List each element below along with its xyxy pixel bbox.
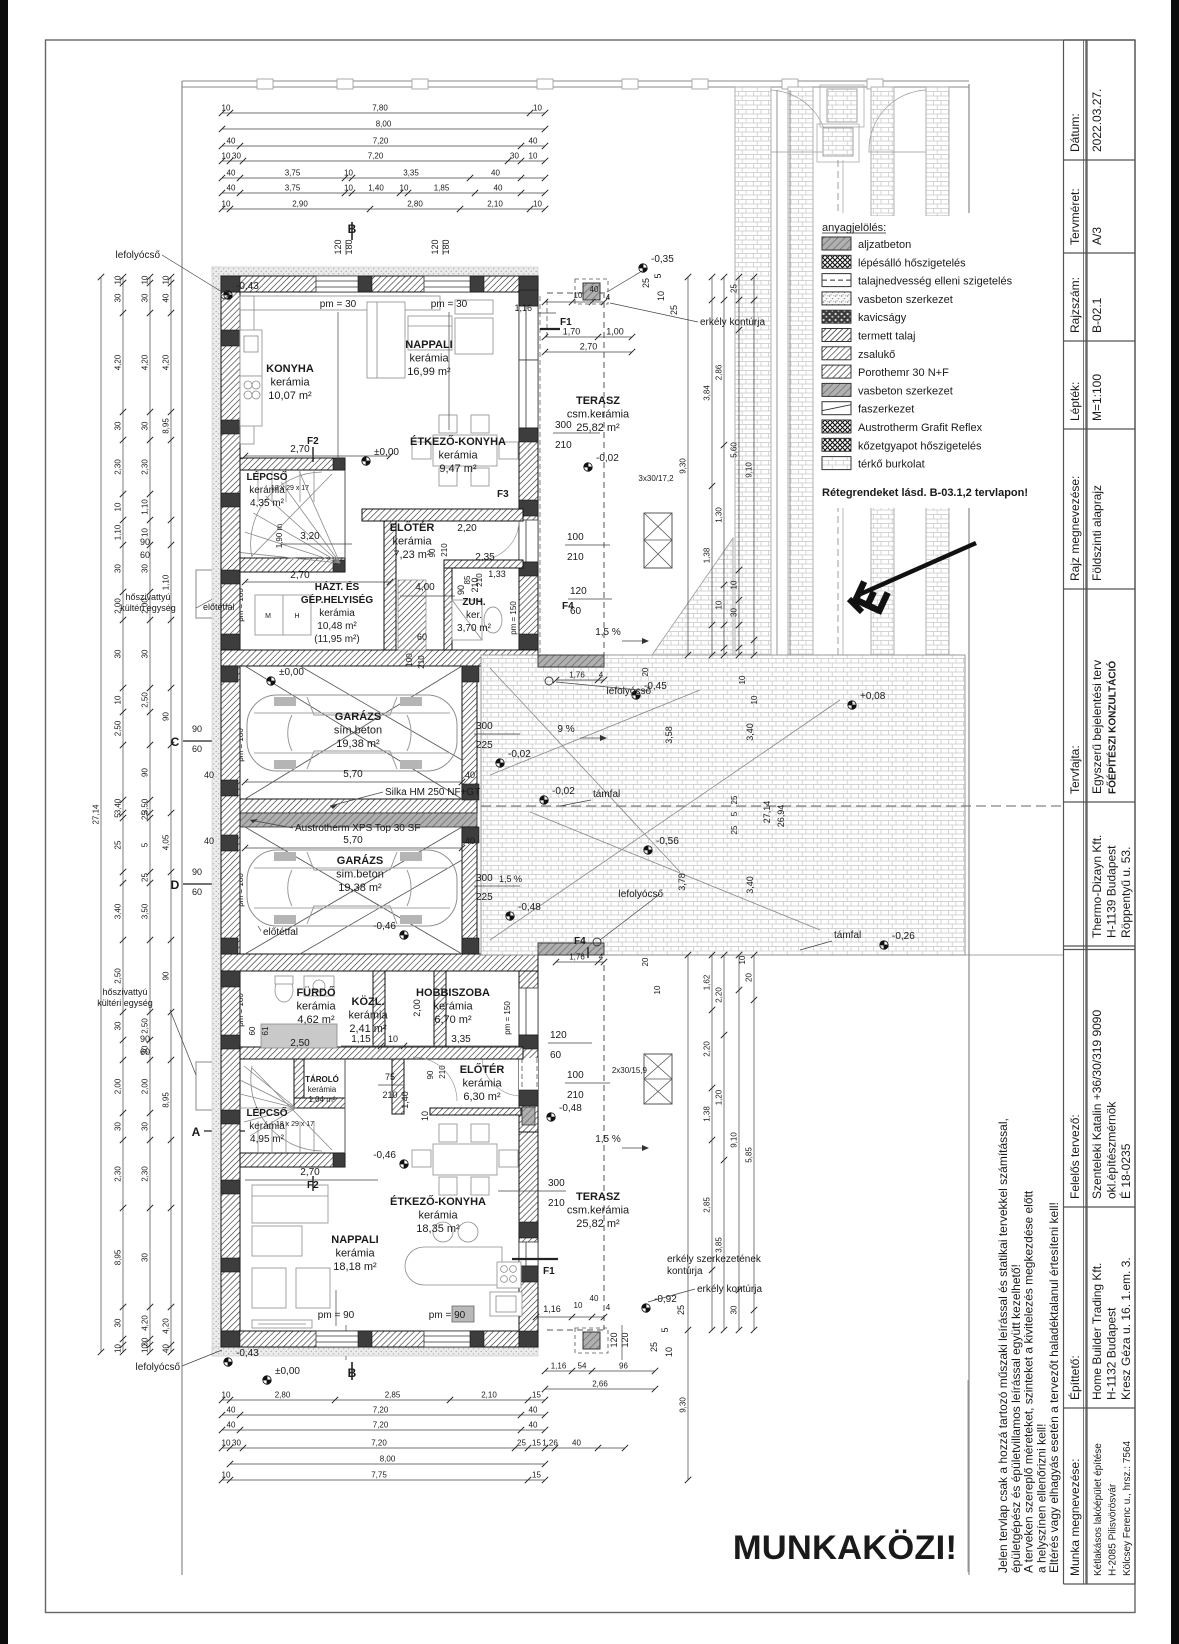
svg-text:1,10: 1,10 xyxy=(141,499,150,515)
svg-text:2,70: 2,70 xyxy=(290,444,310,455)
svg-text:M=1:100: M=1:100 xyxy=(1090,374,1104,421)
svg-text:2,50: 2,50 xyxy=(114,720,123,736)
svg-text:talajnedvesség elleni szigetel: talajnedvesség elleni szigetelés xyxy=(858,276,1013,288)
svg-text:Építtető:: Építtető: xyxy=(1067,1355,1082,1400)
svg-text:Munka megnevezése:: Munka megnevezése: xyxy=(1068,1459,1082,1576)
svg-text:25: 25 xyxy=(730,825,739,834)
svg-text:10: 10 xyxy=(141,275,150,284)
svg-text:30: 30 xyxy=(114,564,123,573)
svg-text:90: 90 xyxy=(141,768,150,777)
svg-text:2,50: 2,50 xyxy=(290,1038,310,1049)
svg-text:1,5 %: 1,5 % xyxy=(595,1134,621,1145)
svg-text:3,85: 3,85 xyxy=(715,1237,724,1253)
svg-text:10: 10 xyxy=(114,502,123,511)
svg-text:27,14: 27,14 xyxy=(92,804,101,825)
svg-text:kerámia: kerámia xyxy=(296,1001,336,1013)
svg-text:8,00: 8,00 xyxy=(376,120,392,129)
svg-text:-0,43: -0,43 xyxy=(236,281,259,292)
svg-text:40: 40 xyxy=(572,1439,581,1448)
svg-text:10: 10 xyxy=(114,695,123,704)
svg-text:2,90: 2,90 xyxy=(292,200,308,209)
svg-text:1,70: 1,70 xyxy=(563,327,581,337)
svg-text:8,00: 8,00 xyxy=(380,1455,396,1464)
svg-text:40: 40 xyxy=(162,293,171,302)
svg-text:10: 10 xyxy=(222,152,231,161)
svg-text:7,80: 7,80 xyxy=(372,104,388,113)
svg-text:9,47 m²: 9,47 m² xyxy=(439,463,477,475)
svg-text:7,20: 7,20 xyxy=(373,1421,389,1430)
svg-text:Silka HM 250 NF+GT: Silka HM 250 NF+GT xyxy=(385,787,480,798)
svg-text:5,60: 5,60 xyxy=(730,442,739,458)
svg-text:25: 25 xyxy=(730,284,739,293)
svg-text:4,20: 4,20 xyxy=(114,354,123,370)
svg-text:1,16: 1,16 xyxy=(551,1362,567,1371)
svg-text:2022.03.27.: 2022.03.27. xyxy=(1090,89,1104,152)
svg-text:10: 10 xyxy=(533,200,542,209)
svg-text:2,00: 2,00 xyxy=(141,1078,150,1094)
svg-text:90: 90 xyxy=(140,1034,150,1044)
svg-text:2,85: 2,85 xyxy=(385,1391,401,1400)
svg-text:2,80: 2,80 xyxy=(407,200,423,209)
svg-text:30: 30 xyxy=(141,293,150,302)
svg-text:100: 100 xyxy=(405,653,414,667)
svg-text:40: 40 xyxy=(227,1421,236,1430)
svg-text:2,50: 2,50 xyxy=(141,692,150,708)
svg-text:FŐÉPÍTÉSZI KONZULTÁCIÓ: FŐÉPÍTÉSZI KONZULTÁCIÓ xyxy=(1106,661,1119,794)
svg-text:10: 10 xyxy=(222,104,231,113)
svg-text:vasbeton szerkezet: vasbeton szerkezet xyxy=(858,385,953,397)
svg-text:ZUH.: ZUH. xyxy=(462,597,486,608)
svg-text:kerámia: kerámia xyxy=(335,1248,375,1260)
svg-text:Kölcsey Ferenc u., hrsz.: 7564: Kölcsey Ferenc u., hrsz.: 7564 xyxy=(1122,1440,1133,1576)
svg-text:1,38: 1,38 xyxy=(703,1106,712,1122)
svg-text:1,5 %: 1,5 % xyxy=(595,627,621,638)
svg-text:1,00: 1,00 xyxy=(606,327,624,337)
svg-text:1,10: 1,10 xyxy=(162,574,171,590)
svg-text:lefolyócső: lefolyócső xyxy=(619,889,664,900)
svg-text:Rétegrendeket lásd. B-03.1,2 t: Rétegrendeket lásd. B-03.1,2 tervlapon! xyxy=(822,487,1028,499)
svg-text:1,38: 1,38 xyxy=(703,547,712,563)
svg-text:4,20: 4,20 xyxy=(141,1315,150,1331)
svg-text:6,70 m²: 6,70 m² xyxy=(434,1014,472,1026)
svg-text:támfal: támfal xyxy=(593,789,620,800)
svg-text:20: 20 xyxy=(641,667,650,676)
svg-text:9 %: 9 % xyxy=(557,724,574,735)
svg-text:30: 30 xyxy=(114,421,123,430)
svg-text:90: 90 xyxy=(140,537,150,547)
svg-text:TÁROLÓ: TÁROLÓ xyxy=(305,1075,339,1084)
svg-text:15: 15 xyxy=(532,1439,541,1448)
svg-text:A: A xyxy=(192,1125,201,1139)
svg-text:Kétlakásos lakóépület építése: Kétlakásos lakóépület építése xyxy=(1093,1443,1104,1576)
svg-text:-0,46: -0,46 xyxy=(373,921,396,932)
svg-text:5: 5 xyxy=(114,813,123,818)
svg-text:2,20: 2,20 xyxy=(703,1041,712,1057)
svg-text:25: 25 xyxy=(730,795,739,804)
svg-text:40: 40 xyxy=(465,836,475,846)
svg-text:3,35: 3,35 xyxy=(451,1034,471,1045)
svg-text:GARÁZS: GARÁZS xyxy=(337,854,383,867)
svg-text:2,50: 2,50 xyxy=(114,968,123,984)
svg-text:1,20: 1,20 xyxy=(715,1089,724,1105)
svg-text:2,10: 2,10 xyxy=(481,1391,497,1400)
svg-text:60: 60 xyxy=(248,1026,257,1035)
svg-text:10: 10 xyxy=(222,200,231,209)
svg-text:5,85: 5,85 xyxy=(745,1147,754,1163)
svg-text:5: 5 xyxy=(730,811,739,816)
svg-text:2,80: 2,80 xyxy=(275,1391,291,1400)
svg-text:90: 90 xyxy=(428,548,437,557)
svg-text:10: 10 xyxy=(388,1034,398,1044)
svg-text:75: 75 xyxy=(385,1072,395,1082)
svg-text:5,70: 5,70 xyxy=(343,769,363,780)
svg-text:4: 4 xyxy=(606,1303,611,1312)
svg-text:210: 210 xyxy=(475,573,484,587)
svg-text:4: 4 xyxy=(606,293,611,302)
svg-text:10: 10 xyxy=(533,104,542,113)
svg-text:225: 225 xyxy=(476,892,493,903)
svg-text:10: 10 xyxy=(141,528,150,537)
svg-text:8,95: 8,95 xyxy=(162,418,171,434)
svg-text:10: 10 xyxy=(738,675,747,684)
svg-text:LÉPCSŐ: LÉPCSŐ xyxy=(246,470,287,483)
svg-text:-0,02: -0,02 xyxy=(508,749,531,760)
svg-text:Tervméret:: Tervméret: xyxy=(1068,188,1082,245)
svg-text:19,38 m²: 19,38 m² xyxy=(336,738,380,750)
svg-text:vasbeton szerkezet: vasbeton szerkezet xyxy=(858,294,953,306)
svg-text:2,30: 2,30 xyxy=(114,1166,123,1182)
svg-text:pm = 30: pm = 30 xyxy=(431,299,468,310)
svg-text:C: C xyxy=(171,735,180,749)
svg-text:4: 4 xyxy=(599,953,604,962)
svg-text:30: 30 xyxy=(232,1439,241,1448)
svg-text:40: 40 xyxy=(227,184,236,193)
svg-text:210: 210 xyxy=(567,1090,584,1101)
svg-text:lépésálló hőszigetelés: lépésálló hőszigetelés xyxy=(858,257,966,269)
svg-text:3,58: 3,58 xyxy=(664,726,674,744)
svg-text:kerámia: kerámia xyxy=(433,1001,473,1013)
svg-text:NAPPALI: NAPPALI xyxy=(405,339,452,351)
svg-text:4,62 m²: 4,62 m² xyxy=(297,1014,335,1026)
svg-text:Lépték:: Lépték: xyxy=(1068,382,1082,421)
svg-text:10: 10 xyxy=(664,1347,674,1357)
svg-text:2,30: 2,30 xyxy=(141,459,150,475)
svg-text:LÉPCSŐ: LÉPCSŐ xyxy=(246,1106,287,1119)
svg-text:erkély kontúrja: erkély kontúrja xyxy=(700,317,765,328)
svg-text:30: 30 xyxy=(114,649,123,658)
svg-text:90: 90 xyxy=(192,867,202,877)
svg-text:TERASZ: TERASZ xyxy=(576,1191,620,1203)
svg-text:120: 120 xyxy=(570,586,587,597)
svg-text:térkő burkolat: térkő burkolat xyxy=(858,459,925,471)
svg-text:GARÁZS: GARÁZS xyxy=(335,710,381,723)
svg-text:1,30: 1,30 xyxy=(715,507,724,523)
svg-text:pm = 150: pm = 150 xyxy=(503,1001,512,1035)
svg-text:F1: F1 xyxy=(543,1266,555,1277)
svg-text:ELŐTÉR: ELŐTÉR xyxy=(390,521,435,534)
svg-text:±0,00: ±0,00 xyxy=(279,667,304,678)
svg-text:60: 60 xyxy=(140,1047,150,1057)
svg-text:csm.kerámia: csm.kerámia xyxy=(567,409,630,421)
svg-text:2,20: 2,20 xyxy=(715,987,724,1003)
svg-text:15: 15 xyxy=(532,1391,541,1400)
svg-text:sím.beton: sím.beton xyxy=(334,725,382,737)
svg-text:1,76: 1,76 xyxy=(569,671,585,680)
svg-text:Rajz megnevezése:: Rajz megnevezése: xyxy=(1068,476,1082,581)
svg-text:90: 90 xyxy=(426,1070,435,1079)
svg-text:Kresz Géza u. 16. 1.em. 3.: Kresz Géza u. 16. 1.em. 3. xyxy=(1119,1257,1133,1400)
svg-text:18,35 m²: 18,35 m² xyxy=(416,1223,460,1235)
svg-text:előtétfal: előtétfal xyxy=(263,927,298,938)
svg-text:120: 120 xyxy=(430,239,440,254)
svg-text:30: 30 xyxy=(730,608,739,617)
svg-text:27,14: 27,14 xyxy=(762,801,772,824)
svg-text:Thermo-Dizayn Kft.: Thermo-Dizayn Kft. xyxy=(1090,835,1104,938)
svg-text:3,40: 3,40 xyxy=(745,723,755,741)
svg-text:Egyszerű bejelentési terv: Egyszerű bejelentési terv xyxy=(1090,660,1104,794)
svg-text:25,82 m²: 25,82 m² xyxy=(576,422,620,434)
svg-text:100: 100 xyxy=(567,1070,584,1081)
svg-text:96: 96 xyxy=(619,1362,628,1371)
svg-text:10: 10 xyxy=(162,275,171,284)
svg-text:2,70: 2,70 xyxy=(580,342,598,352)
svg-text:2,70: 2,70 xyxy=(300,1167,320,1178)
svg-text:4,20: 4,20 xyxy=(141,354,150,370)
svg-text:erkély kontúrja: erkély kontúrja xyxy=(697,1284,762,1295)
svg-text:2,20: 2,20 xyxy=(457,523,477,534)
svg-text:10,07 m²: 10,07 m² xyxy=(268,390,312,402)
svg-text:2,30: 2,30 xyxy=(141,1166,150,1182)
svg-text:kerámia: kerámia xyxy=(270,377,310,389)
svg-text:10: 10 xyxy=(574,291,583,300)
svg-text:H: H xyxy=(294,613,299,620)
svg-text:3,50: 3,50 xyxy=(141,903,150,919)
svg-text:Home Builder Trading Kft.: Home Builder Trading Kft. xyxy=(1090,1263,1104,1400)
svg-text:lefolyócső: lefolyócső xyxy=(116,250,161,261)
svg-text:HOBBISZOBA: HOBBISZOBA xyxy=(416,987,490,999)
svg-text:7,20: 7,20 xyxy=(373,1406,389,1415)
svg-text:90: 90 xyxy=(162,971,171,980)
svg-text:GÉP.HELYISÉG: GÉP.HELYISÉG xyxy=(301,593,373,606)
svg-text:7,20: 7,20 xyxy=(373,137,389,146)
svg-text:25: 25 xyxy=(641,278,651,288)
svg-text:40: 40 xyxy=(590,285,599,294)
svg-text:30: 30 xyxy=(114,1122,123,1131)
svg-text:B-02.1: B-02.1 xyxy=(1090,297,1104,333)
svg-text:1,76: 1,76 xyxy=(569,953,585,962)
svg-text:6,30 m²: 6,30 m² xyxy=(463,1091,501,1103)
svg-text:hőszivattyú: hőszivattyú xyxy=(102,987,147,997)
svg-text:1,40: 1,40 xyxy=(400,1091,410,1109)
svg-text:40: 40 xyxy=(227,1406,236,1415)
svg-text:F4: F4 xyxy=(574,936,586,947)
svg-text:kerámia: kerámia xyxy=(319,608,355,619)
svg-text:ker.: ker. xyxy=(466,610,482,621)
svg-text:2,00: 2,00 xyxy=(114,1078,123,1094)
svg-text:3,75: 3,75 xyxy=(285,184,301,193)
svg-text:-0,46: -0,46 xyxy=(373,1150,396,1161)
svg-text:támfal: támfal xyxy=(834,930,861,941)
svg-text:F3: F3 xyxy=(497,489,509,500)
svg-text:10: 10 xyxy=(529,152,538,161)
svg-text:1,26: 1,26 xyxy=(542,1439,558,1448)
svg-text:40: 40 xyxy=(227,169,236,178)
svg-text:ÉTKEZŐ-KONYHA: ÉTKEZŐ-KONYHA xyxy=(410,435,506,448)
svg-text:40: 40 xyxy=(227,137,236,146)
svg-text:10: 10 xyxy=(420,1111,430,1121)
svg-text:4: 4 xyxy=(599,671,604,680)
svg-text:4,00: 4,00 xyxy=(415,582,435,593)
svg-text:Dátum:: Dátum: xyxy=(1068,113,1082,152)
svg-text:2,10: 2,10 xyxy=(487,200,503,209)
svg-text:40: 40 xyxy=(529,1421,538,1430)
svg-text:61: 61 xyxy=(261,1026,270,1035)
svg-text:10: 10 xyxy=(738,955,747,964)
svg-text:40: 40 xyxy=(204,770,214,780)
svg-text:2x30/15,9: 2x30/15,9 xyxy=(612,1066,648,1075)
svg-text:19,38 m²: 19,38 m² xyxy=(338,882,382,894)
svg-text:25: 25 xyxy=(114,840,123,849)
svg-text:4,05: 4,05 xyxy=(162,834,171,850)
svg-text:210: 210 xyxy=(382,1090,397,1100)
svg-text:TERASZ: TERASZ xyxy=(576,395,620,407)
svg-text:előtétfal: előtétfal xyxy=(203,602,235,612)
svg-text:KONYHA: KONYHA xyxy=(266,363,314,375)
svg-text:10: 10 xyxy=(222,1391,231,1400)
svg-text:3,78: 3,78 xyxy=(677,873,687,891)
svg-text:2,86: 2,86 xyxy=(715,364,724,380)
svg-text:hőszivattyú: hőszivattyú xyxy=(125,592,170,602)
svg-text:10: 10 xyxy=(344,169,353,178)
svg-text:60: 60 xyxy=(192,744,202,754)
svg-text:60: 60 xyxy=(417,632,427,642)
svg-text:300: 300 xyxy=(476,721,493,732)
svg-text:H-2085 Pilisvörösvár: H-2085 Pilisvörösvár xyxy=(1108,1483,1119,1576)
svg-text:40: 40 xyxy=(465,770,475,780)
svg-text:-0,26: -0,26 xyxy=(892,931,915,942)
svg-text:2,85: 2,85 xyxy=(703,1197,712,1213)
svg-text:30: 30 xyxy=(141,564,150,573)
svg-text:-0,56: -0,56 xyxy=(656,836,679,847)
svg-text:Eltérés vagy elhagyás esetén a: Eltérés vagy elhagyás esetén a tervezőt … xyxy=(1047,1202,1061,1573)
svg-text:3,40: 3,40 xyxy=(114,798,123,814)
svg-text:kavicságy: kavicságy xyxy=(858,312,907,324)
svg-text:30: 30 xyxy=(232,152,241,161)
svg-text:180: 180 xyxy=(441,239,451,254)
svg-text:20: 20 xyxy=(641,957,650,966)
svg-text:1,15: 1,15 xyxy=(351,1034,371,1045)
svg-text:60: 60 xyxy=(550,1050,562,1061)
svg-text:4,95 m²: 4,95 m² xyxy=(250,1134,285,1145)
svg-text:10: 10 xyxy=(574,1301,583,1310)
svg-text:225: 225 xyxy=(476,740,493,751)
svg-text:54: 54 xyxy=(578,1362,587,1371)
svg-text:25: 25 xyxy=(676,1305,686,1315)
svg-text:pm = 90: pm = 90 xyxy=(429,1310,466,1321)
svg-text:1,16: 1,16 xyxy=(543,1304,561,1314)
svg-text:pm = 150: pm = 150 xyxy=(509,601,518,635)
svg-text:16,99 m²: 16,99 m² xyxy=(407,366,451,378)
svg-text:1,16: 1,16 xyxy=(514,303,532,313)
svg-text:3,40: 3,40 xyxy=(745,876,755,894)
svg-text:60: 60 xyxy=(192,887,202,897)
svg-text:300: 300 xyxy=(555,420,572,431)
svg-text:NAPPALI: NAPPALI xyxy=(331,1234,378,1246)
svg-text:kerámia: kerámia xyxy=(462,1078,502,1090)
svg-text:aljzatbeton: aljzatbeton xyxy=(858,239,911,251)
svg-text:9,10: 9,10 xyxy=(745,462,754,478)
svg-text:120: 120 xyxy=(620,1332,630,1347)
svg-text:1,40: 1,40 xyxy=(368,184,384,193)
svg-text:termett talaj: termett talaj xyxy=(858,331,915,343)
svg-text:3,70 m²: 3,70 m² xyxy=(457,623,492,634)
svg-text:100: 100 xyxy=(567,532,584,543)
svg-text:7,20: 7,20 xyxy=(371,1439,387,1448)
svg-text:40: 40 xyxy=(162,1344,171,1353)
svg-text:H-1139 Budapest: H-1139 Budapest xyxy=(1105,845,1119,938)
svg-text:10: 10 xyxy=(656,291,666,301)
svg-text:9,30: 9,30 xyxy=(679,1397,688,1413)
svg-text:3,20: 3,20 xyxy=(300,531,320,542)
svg-text:10: 10 xyxy=(114,1344,123,1353)
svg-text:A/3: A/3 xyxy=(1090,227,1104,245)
svg-text:-0,48: -0,48 xyxy=(559,1103,582,1114)
svg-text:40: 40 xyxy=(590,1294,599,1303)
svg-text:2,66: 2,66 xyxy=(592,1380,608,1389)
svg-text:25: 25 xyxy=(141,873,150,882)
svg-text:kerámia: kerámia xyxy=(409,353,449,365)
svg-text:30: 30 xyxy=(114,1318,123,1327)
svg-text:Austrotherm Grafit Reflex: Austrotherm Grafit Reflex xyxy=(858,422,983,434)
svg-text:90: 90 xyxy=(162,712,171,721)
svg-text:210: 210 xyxy=(440,543,449,557)
svg-text:60: 60 xyxy=(140,550,150,560)
svg-text:2,30: 2,30 xyxy=(114,459,123,475)
svg-text:18 x 29 x 17: 18 x 29 x 17 xyxy=(276,1121,314,1128)
svg-text:10: 10 xyxy=(715,600,724,609)
svg-text:-0,02: -0,02 xyxy=(552,786,575,797)
svg-text:18,18 m²: 18,18 m² xyxy=(333,1261,377,1273)
svg-text:MUNKAKÖZI!: MUNKAKÖZI! xyxy=(733,1528,957,1567)
svg-text:30: 30 xyxy=(114,293,123,302)
svg-text:40: 40 xyxy=(204,836,214,846)
svg-text:120: 120 xyxy=(333,239,343,254)
svg-text:+0,08: +0,08 xyxy=(860,691,886,702)
svg-text:1,90 m: 1,90 m xyxy=(275,523,284,548)
svg-text:-0,48: -0,48 xyxy=(518,902,541,913)
svg-text:3,35: 3,35 xyxy=(403,169,419,178)
svg-text:1,85: 1,85 xyxy=(434,184,450,193)
svg-text:zsalukő: zsalukő xyxy=(858,349,895,361)
svg-text:300: 300 xyxy=(476,873,493,884)
svg-text:D: D xyxy=(171,878,180,892)
svg-text:2,70: 2,70 xyxy=(290,570,310,581)
svg-text:-0,35: -0,35 xyxy=(651,254,674,265)
svg-text:8,95: 8,95 xyxy=(114,1249,123,1265)
svg-text:120: 120 xyxy=(550,1030,567,1041)
svg-text:-0,02: -0,02 xyxy=(596,453,619,464)
svg-text:18 x 29 x 17: 18 x 29 x 17 xyxy=(271,485,309,492)
svg-text:10,48 m²: 10,48 m² xyxy=(317,621,357,632)
svg-text:30: 30 xyxy=(114,1021,123,1030)
svg-text:2,50: 2,50 xyxy=(141,1018,150,1034)
svg-text:kőzetgyapot hőszigetelés: kőzetgyapot hőszigetelés xyxy=(858,440,982,452)
svg-text:Felelős tervező:: Felelős tervező: xyxy=(1068,1114,1082,1199)
svg-text:Szenteleki Katalin +36/30/319: Szenteleki Katalin +36/30/319 9090 xyxy=(1090,1010,1104,1199)
svg-text:lefolyócső: lefolyócső xyxy=(136,1362,181,1373)
svg-text:4,20: 4,20 xyxy=(162,1318,171,1334)
svg-text:300: 300 xyxy=(548,1178,565,1189)
